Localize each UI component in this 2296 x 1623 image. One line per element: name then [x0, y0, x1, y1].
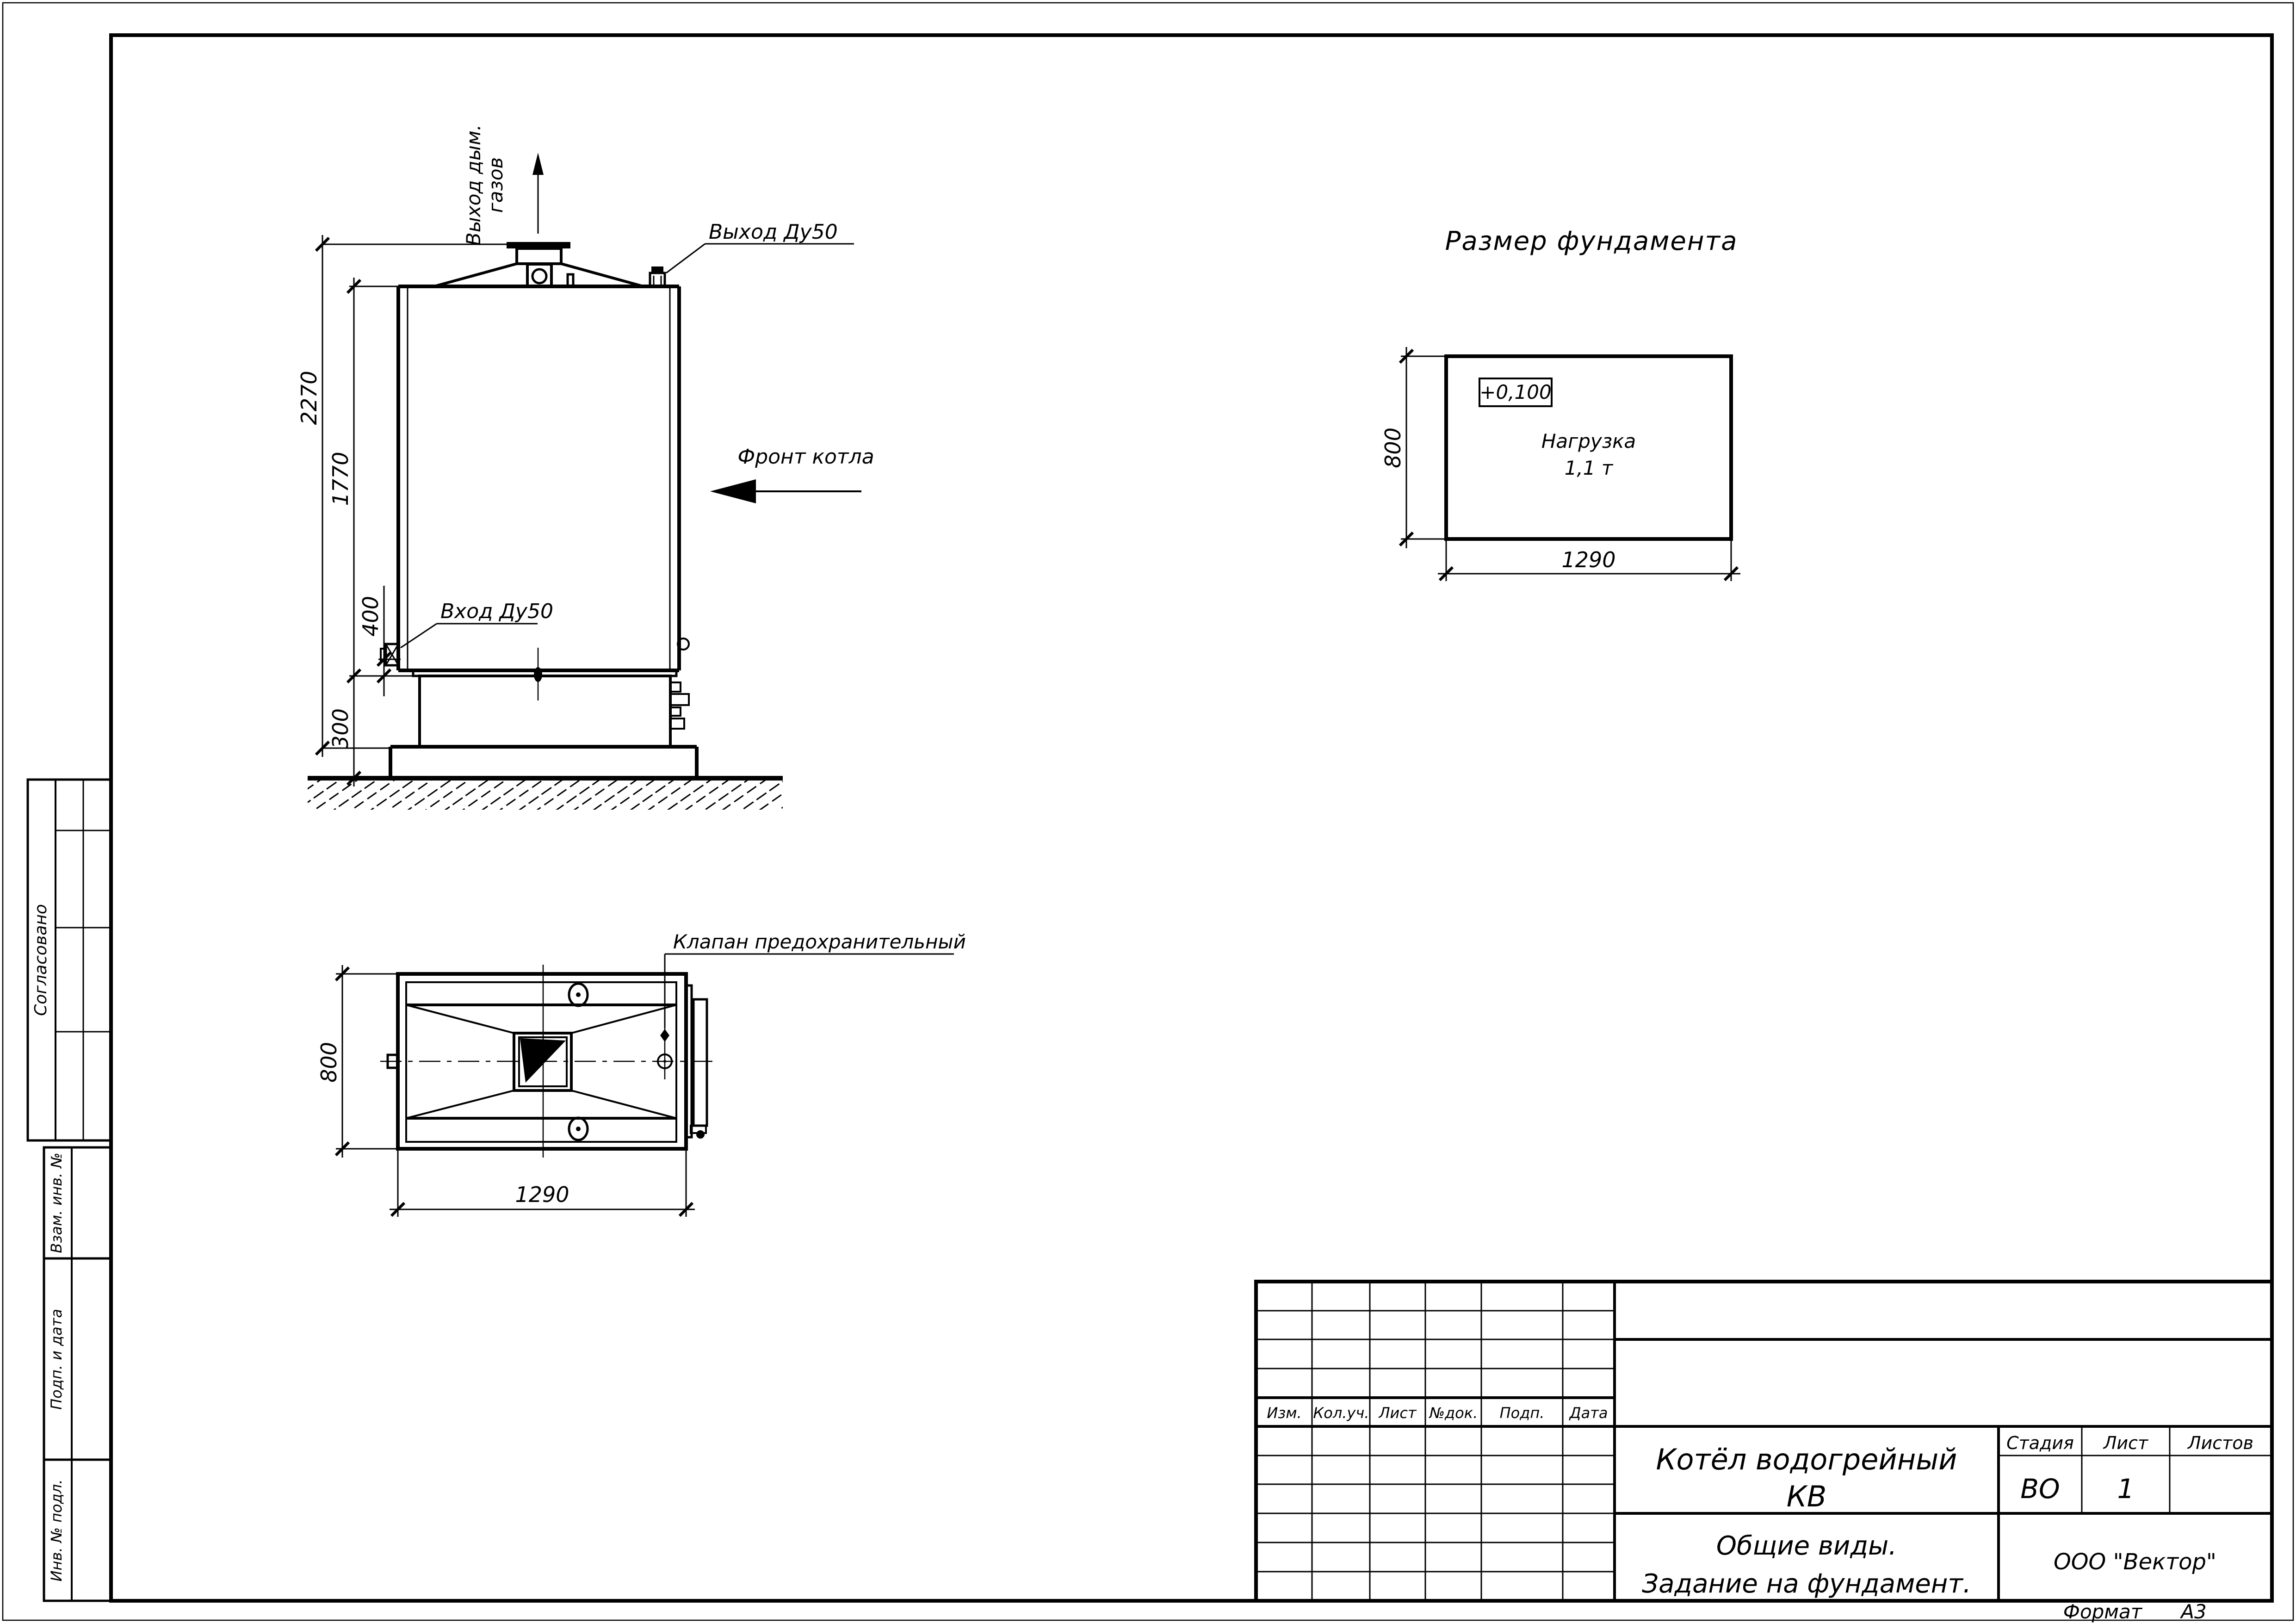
- outlet-leader: Выход Ду50: [666, 220, 854, 273]
- elevation-mark: +0,100: [1479, 378, 1552, 406]
- doc-title-line1: Общие виды.: [1716, 1531, 1897, 1561]
- sheet-frame: [3, 3, 2293, 1620]
- sheets-header: Листов: [2187, 1433, 2253, 1453]
- roof-manhole-glass: [532, 269, 546, 283]
- outlet-label: Выход Ду50: [709, 220, 838, 244]
- dim-1770: 1770: [328, 452, 353, 506]
- dim-400: 400: [358, 596, 383, 637]
- sign-date-block: Подп. и дата: [44, 1258, 111, 1460]
- dimension-inlet-height: 400: [358, 586, 401, 696]
- flue-gas-label-line1: Выход дым.: [462, 124, 485, 246]
- stage-header: Стадия: [2006, 1433, 2074, 1453]
- sheet-value: 1: [2117, 1473, 2135, 1505]
- dim-2270: 2270: [297, 371, 322, 425]
- replace-inv-label: Взам. инв. №: [48, 1152, 65, 1253]
- base-plinth: [420, 676, 670, 747]
- stage-value: ВО: [2020, 1473, 2060, 1505]
- dim-300: 300: [328, 708, 353, 749]
- sign-date-label: Подп. и дата: [48, 1309, 65, 1410]
- foundation-dimension-length: 1290: [1438, 539, 1740, 581]
- foundation-plan: Размер фундамента +0,100 Нагрузка 1,1 т …: [1380, 226, 1740, 581]
- foundation-dimension-width: 800: [1380, 347, 1446, 548]
- elevation-value: +0,100: [1479, 381, 1551, 403]
- side-stamp: Согласовано Взам. инв. № Подп. и дата Ин…: [28, 780, 111, 1601]
- foundation-title: Размер фундамента: [1445, 226, 1738, 256]
- title-block: Изм. Кол.уч. Лист №док. Подп. Дата Стади…: [1256, 1282, 2272, 1601]
- plan-lifting-eye-bottom: [569, 1118, 588, 1140]
- boiler-plan-view: Клапан предохранительный 800 1290: [316, 930, 966, 1217]
- chimney-neck: [517, 248, 561, 264]
- format-label: Формат: [2063, 1600, 2143, 1623]
- valve-leader: Клапан предохранительный: [665, 930, 966, 1028]
- ground-hatch: [308, 779, 783, 810]
- inlet-label: Вход Ду50: [440, 600, 553, 623]
- plan-dim-1290: 1290: [515, 1182, 569, 1207]
- rev-header-podp: Подп.: [1500, 1404, 1545, 1422]
- foundation-dim-1290: 1290: [1561, 547, 1615, 572]
- rev-header-koluch: Кол.уч.: [1313, 1404, 1369, 1422]
- inlet-leader: Вход Ду50: [401, 600, 553, 648]
- roof-slope-left: [436, 264, 517, 286]
- inv-orig-block: Инв. № подл.: [44, 1460, 111, 1601]
- revision-grid: Изм. Кол.уч. Лист №док. Подп. Дата: [1256, 1282, 1615, 1601]
- boiler-front-label: Фронт котла: [737, 445, 874, 469]
- drawing-canvas: Выход дым. газов В: [0, 0, 2296, 1623]
- plan-dimension-length: 1290: [390, 1149, 695, 1217]
- dimension-body-height: 1770 300: [328, 278, 420, 787]
- boiler-front-view: Выход дым. газов В: [297, 124, 874, 810]
- doc-title-line2: Задание на фундамент.: [1642, 1569, 1971, 1599]
- outlet-nozzle: [650, 266, 665, 286]
- load-value: 1,1 т: [1565, 457, 1614, 479]
- anchor-mark: [534, 648, 542, 700]
- left-arrow-icon: [710, 479, 861, 503]
- load-label: Нагрузка: [1541, 430, 1636, 452]
- rev-header-list: Лист: [1378, 1404, 1417, 1422]
- approved-label: Согласовано: [31, 904, 50, 1016]
- replace-inv-block: Взам. инв. №: [44, 1147, 111, 1258]
- foundation-section: [390, 747, 697, 778]
- format-value: А3: [2179, 1600, 2206, 1623]
- safety-valve: [658, 1024, 672, 1079]
- plan-dim-800: 800: [316, 1042, 341, 1083]
- up-arrow-icon: [532, 153, 544, 234]
- sheet-header: Лист: [2103, 1433, 2149, 1453]
- approved-block: Согласовано: [28, 780, 111, 1140]
- sheet-trim-border: [3, 3, 2293, 1620]
- drawing-sheet: Выход дым. газов В: [0, 0, 2296, 1623]
- foundation-dim-800: 800: [1380, 427, 1405, 468]
- safety-valve-label: Клапан предохранительный: [673, 930, 966, 953]
- object-name-line1: Котёл водогрейный: [1656, 1443, 1957, 1476]
- object-name-line2: КВ: [1787, 1480, 1827, 1513]
- rev-header-data: Дата: [1569, 1404, 1608, 1422]
- flue-gas-label-line2: газов: [484, 157, 507, 213]
- drawing-frame: [111, 35, 2272, 1601]
- plan-right-panel: [686, 985, 707, 1139]
- inv-orig-label: Инв. № подл.: [48, 1480, 65, 1582]
- company-name: ООО "Вектор": [2054, 1549, 2216, 1575]
- rev-header-ndok: №док.: [1429, 1404, 1478, 1422]
- rev-header-izm: Изм.: [1267, 1404, 1301, 1422]
- format-note: Формат А3: [2063, 1600, 2207, 1623]
- plan-lifting-eye-top: [569, 984, 588, 1006]
